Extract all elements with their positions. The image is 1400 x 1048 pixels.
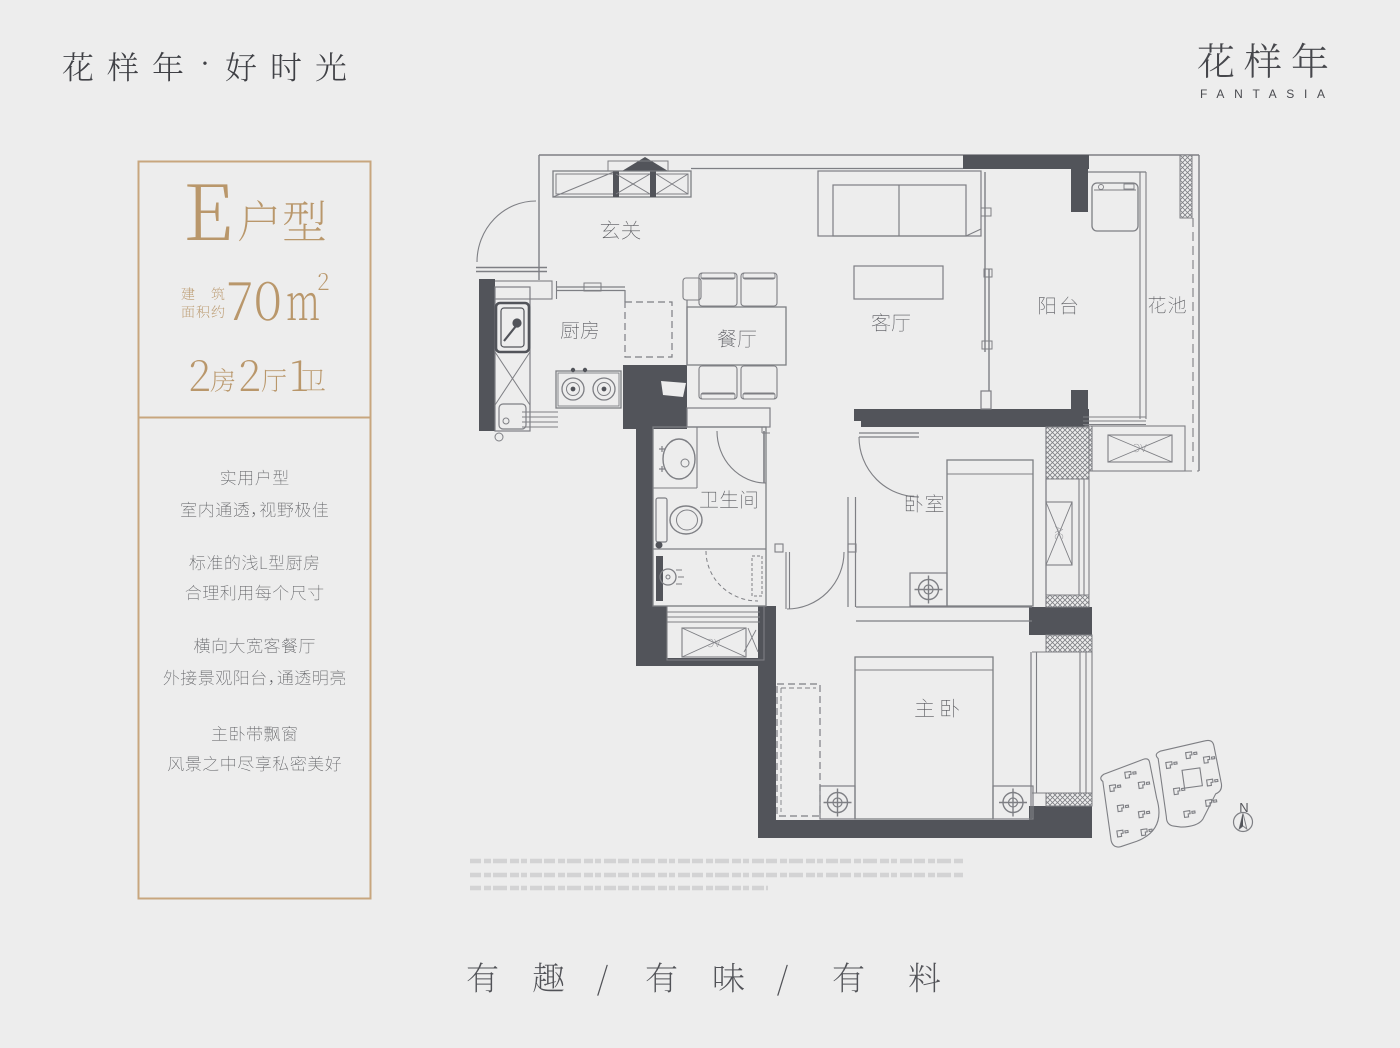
svg-text:FANTASIA: FANTASIA (1200, 87, 1335, 101)
svg-text:N: N (1239, 800, 1248, 815)
